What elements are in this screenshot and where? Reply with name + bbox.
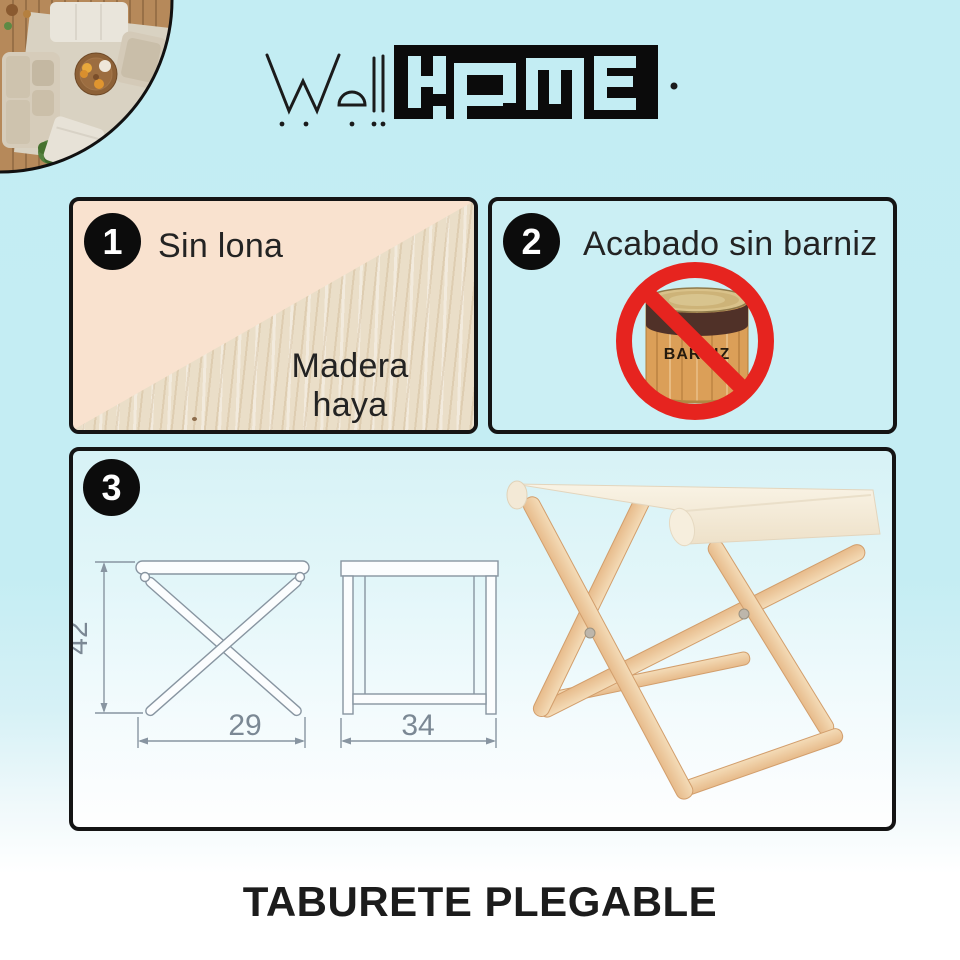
dimension-width: 29 <box>138 709 305 748</box>
dim-depth-value: 34 <box>401 709 434 742</box>
dim-width-value: 29 <box>228 709 261 742</box>
panel-sin-barniz: 2 Acabado sin barniz <box>488 197 897 434</box>
stool-photo <box>507 481 880 802</box>
dimension-drawings-and-stool: 42 29 <box>73 451 892 827</box>
logo-well-strokes <box>267 55 383 111</box>
step-badge-1: 1 <box>84 213 141 270</box>
front-view-drawing <box>136 561 309 717</box>
product-infographic-page: Well HOME <box>0 0 960 960</box>
room-photo-content <box>0 0 180 180</box>
dimension-depth: 34 <box>341 709 496 748</box>
brand-logo-graphic <box>258 38 688 140</box>
product-title: TABURETE PLEGABLE <box>0 878 960 926</box>
step-number-1: 1 <box>102 221 122 263</box>
panel-sin-lona: 1 Sin lona Madera haya <box>69 197 478 434</box>
panel-dimensions: 3 <box>69 447 896 831</box>
no-varnish-illustration: BARNIZ <box>492 201 893 430</box>
wood-speck <box>192 417 197 421</box>
canvas-seat <box>507 481 880 548</box>
dim-height-value: 42 <box>73 621 94 654</box>
label-sin-lona: Sin lona <box>158 227 283 266</box>
side-view-drawing <box>341 561 498 714</box>
pivot-screw-right <box>739 609 749 619</box>
pivot-screw-left <box>585 628 595 638</box>
dimension-height: 42 <box>73 562 143 713</box>
label-madera-haya: Madera haya <box>250 347 450 425</box>
brand-logo: Well HOME <box>258 38 688 140</box>
room-photo <box>0 0 180 180</box>
